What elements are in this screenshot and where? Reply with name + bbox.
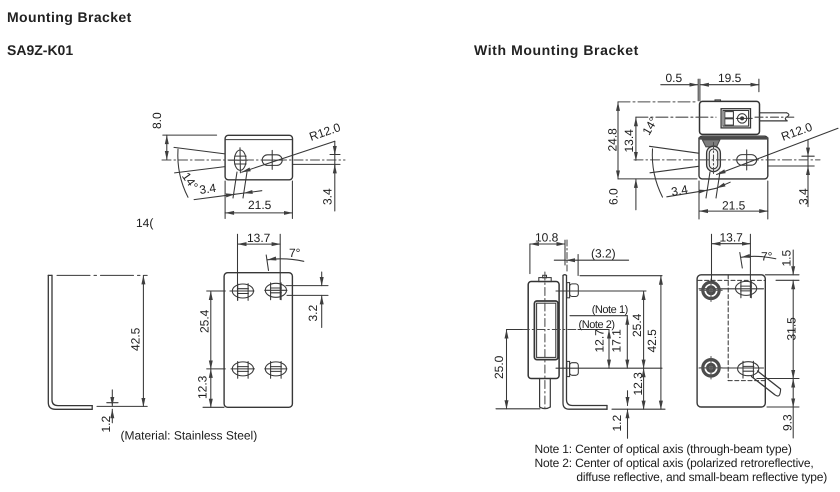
svg-text:With Mounting Bracket: With Mounting Bracket: [474, 42, 639, 58]
svg-text:9.3: 9.3: [781, 414, 795, 431]
svg-text:13.4: 13.4: [622, 129, 636, 153]
svg-text:(3.2): (3.2): [591, 247, 616, 261]
svg-text:25.4: 25.4: [198, 309, 212, 333]
svg-text:Note 1: Center of optical axis: Note 1: Center of optical axis (through-…: [535, 442, 792, 456]
svg-text:Note 2: Center of optical axis: Note 2: Center of optical axis (polarize…: [535, 456, 814, 470]
svg-text:SA9Z-K01: SA9Z-K01: [7, 42, 73, 58]
svg-text:13.7: 13.7: [247, 231, 271, 245]
svg-text:14°: 14°: [639, 115, 660, 138]
svg-text:3.4: 3.4: [321, 188, 335, 205]
svg-text:7°: 7°: [289, 246, 301, 260]
svg-text:R12.0: R12.0: [307, 120, 342, 144]
svg-text:42.5: 42.5: [129, 327, 143, 351]
svg-text:12.7: 12.7: [593, 329, 607, 353]
svg-text:31.5: 31.5: [784, 317, 798, 341]
svg-text:14°: 14°: [179, 170, 201, 193]
svg-text:13.7: 13.7: [720, 231, 744, 245]
svg-text:10.8: 10.8: [535, 231, 559, 245]
svg-text:6.0: 6.0: [607, 188, 621, 205]
svg-text:25.4: 25.4: [630, 313, 644, 337]
svg-text:12.3: 12.3: [631, 372, 645, 396]
svg-text:Mounting Bracket: Mounting Bracket: [7, 9, 132, 25]
svg-text:1.2: 1.2: [610, 414, 624, 431]
svg-text:25.0: 25.0: [492, 355, 506, 379]
svg-text:7°: 7°: [761, 250, 773, 264]
svg-text:21.5: 21.5: [248, 198, 272, 212]
svg-text:14(: 14(: [136, 216, 153, 230]
svg-text:8.0: 8.0: [150, 112, 164, 129]
svg-text:3.4: 3.4: [198, 181, 217, 197]
svg-text:1.2: 1.2: [99, 415, 113, 432]
svg-text:19.5: 19.5: [718, 71, 742, 85]
svg-text:24.8: 24.8: [606, 128, 620, 152]
svg-text:(Note 1): (Note 1): [592, 304, 628, 316]
svg-text:R12.0: R12.0: [779, 120, 814, 144]
svg-text:3.4: 3.4: [797, 188, 811, 205]
svg-text:21.5: 21.5: [722, 199, 746, 213]
svg-text:(Material: Stainless Steel): (Material: Stainless Steel): [121, 429, 258, 443]
svg-text:12.3: 12.3: [196, 375, 210, 399]
svg-text:17.1: 17.1: [610, 329, 624, 353]
svg-text:3.2: 3.2: [306, 304, 320, 321]
svg-text:1.5: 1.5: [780, 249, 794, 266]
svg-text:3.4: 3.4: [670, 182, 689, 199]
svg-text:0.5: 0.5: [666, 71, 683, 85]
svg-text:diffuse reflective, and small-: diffuse reflective, and small-beam refle…: [576, 470, 827, 484]
svg-text:42.5: 42.5: [645, 329, 659, 353]
